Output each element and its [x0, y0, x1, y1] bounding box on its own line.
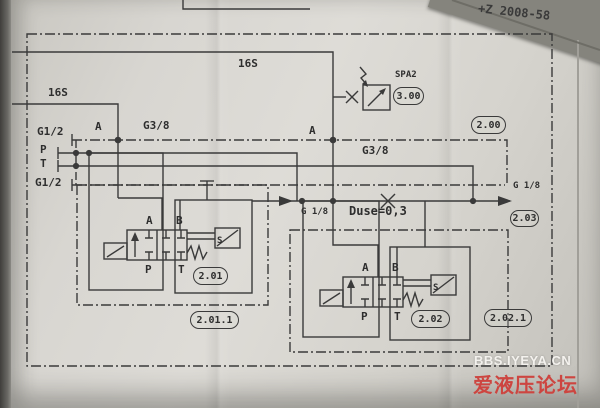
spring-icon	[187, 246, 207, 259]
valve-left-solenoid-s: S	[217, 236, 222, 246]
label-g18-right: G 1/8	[513, 181, 540, 191]
a-connection	[118, 198, 162, 230]
valve-left-port-p: P	[145, 263, 152, 276]
valve-left-port-a: A	[146, 214, 153, 227]
label-port-t: T	[40, 157, 47, 170]
ref-valve-right: 2.02	[411, 310, 450, 328]
ref-circuit-top: 2.00	[471, 116, 506, 134]
junction-dot	[74, 164, 79, 169]
flow-arrow-icon	[498, 196, 512, 206]
assembly-left	[77, 153, 268, 305]
valve-right-port-a: A	[362, 261, 369, 274]
valve-right-port-p: P	[361, 310, 368, 323]
watermark-forum-name: 爱液压论坛	[473, 369, 578, 398]
label-16s-outer: 16S	[238, 57, 258, 70]
label-spa2: SPA2	[395, 70, 417, 80]
valve-left-port-t: T	[178, 263, 185, 276]
ref-port-right: 2.03	[510, 210, 539, 227]
g38-phantom-line	[72, 140, 507, 186]
valve-right-port-t: T	[394, 310, 401, 323]
label-16s-inner: 16S	[48, 86, 68, 99]
flow-arrow-icon	[279, 196, 293, 206]
ref-pressure-switch: 3.00	[393, 87, 424, 105]
watermark-site: BBS.IYEYA.CN	[474, 353, 571, 368]
valve-left-port-b: B	[176, 214, 183, 227]
t-line	[58, 160, 473, 201]
label-g18-mid: G 1/8	[301, 207, 328, 217]
label-g38-left: G3/8	[143, 119, 170, 132]
label-port-p: P	[40, 143, 47, 156]
ref-assembly-left: 2.01.1	[190, 311, 239, 329]
valve-right-port-b: B	[392, 261, 399, 274]
label-orifice: Duse=0,3	[349, 204, 407, 218]
assembly-right-phantom-box	[290, 230, 508, 352]
label-junction-a-right: A	[309, 124, 316, 137]
label-g12-bottom: G1/2	[35, 176, 62, 189]
ref-assembly-right: 2.02.1	[484, 309, 532, 327]
schematic-photo: 16S 16S G1/2 P T G1/2 A G3/8 A G3/8 SPA2…	[0, 0, 600, 408]
label-junction-a-left: A	[95, 120, 102, 133]
label-g38-right: G3/8	[362, 144, 389, 157]
valve-right-solenoid-s: S	[433, 283, 438, 293]
pressure-switch-branch	[333, 67, 390, 110]
spring-icon	[403, 293, 423, 306]
junction-dot	[74, 151, 79, 156]
junction-a-left-dot	[115, 137, 120, 142]
box-16s-inner	[12, 104, 118, 198]
label-g12-top: G1/2	[37, 125, 64, 138]
ref-valve-left: 2.01	[193, 267, 228, 285]
p-line	[58, 147, 297, 201]
schematic-linework	[0, 0, 600, 408]
